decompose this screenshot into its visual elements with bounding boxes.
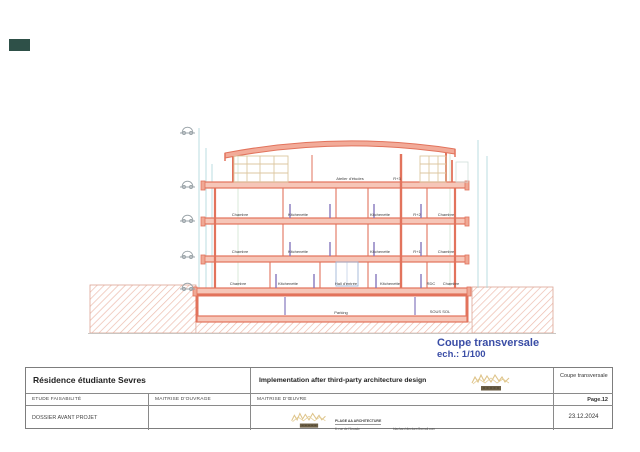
drawing-name: Coupe transversale: [554, 368, 613, 394]
drawing-sheet: Atelier d'études R+3 Chambre Kitchenette…: [0, 0, 640, 452]
curved-roof: [225, 141, 455, 161]
room-label: Hall d'entrée: [335, 281, 358, 286]
page-number: Page.12: [554, 394, 613, 406]
empty-cell: [149, 406, 251, 430]
room-label: Atelier d'études: [336, 176, 363, 181]
room-label: Kitchenette: [370, 249, 391, 254]
caption-title: Coupe transversale: [437, 337, 577, 350]
header-etude: ETUDE FAISABILITÉ: [26, 394, 149, 406]
level-label: R+2: [413, 212, 421, 217]
caption-scale: ech.: 1/100: [437, 350, 577, 361]
room-label: Kitchenette: [278, 281, 299, 286]
room-label: Kitchenette: [288, 212, 309, 217]
room-label: Chambre: [438, 212, 455, 217]
architect-logo: [287, 408, 331, 429]
car-icon: [180, 251, 195, 258]
car-icon: [180, 215, 195, 222]
room-label: Chambre: [443, 281, 460, 286]
room-label: Kitchenette: [288, 249, 309, 254]
room-label: Chambre: [438, 249, 455, 254]
architect-name: PLAGE AA ARCHITECTURE: [335, 419, 381, 425]
architect-logo: [469, 369, 513, 392]
room-label: Kitchenette: [370, 212, 391, 217]
header-maitrise-ouvrage: MAITRISE D'OUVRAGE: [149, 394, 251, 406]
header-maitrise-oeuvre: MAITRISE D'ŒUVRE: [251, 394, 554, 406]
architect-cell: PLAGE AA ARCHITECTURE 6, rue de l'Arcade…: [251, 406, 554, 430]
level-label: R+1: [413, 249, 421, 254]
room-label: Kitchenette: [380, 281, 401, 286]
car-icon: [180, 127, 195, 134]
basement-structure: [197, 295, 467, 322]
floor-slabs: [193, 181, 471, 296]
note-text: Implementation after third-party archite…: [251, 368, 474, 384]
title-block: Résidence étudiante Sevres Implementatio…: [25, 367, 613, 429]
car-icons: [180, 127, 195, 290]
project-title: Résidence étudiante Sevres: [26, 368, 251, 394]
room-label: Chambre: [230, 281, 247, 286]
phase-label: DOSSIER AVANT PROJET: [26, 406, 149, 430]
car-icon: [180, 181, 195, 188]
date-label: 23.12.2024: [554, 406, 613, 430]
architect-contact: PLAGE AA ARCHITECTURE 6, rue de l'Arcade…: [335, 409, 440, 430]
architect-address1: 6, rue de l'Arcade: [335, 427, 385, 430]
note-cell: Implementation after third-party archite…: [251, 368, 554, 394]
room-label: Chambre: [232, 212, 249, 217]
level-label: SOUS SOL: [430, 309, 451, 314]
level-label: R+3: [393, 176, 401, 181]
room-label: Parking: [334, 310, 348, 315]
level-label: RDC: [427, 281, 436, 286]
room-label: Chambre: [232, 249, 249, 254]
architect-email: blacharchitecture@gmail.com: [393, 427, 440, 430]
drawing-caption: Coupe transversale ech.: 1/100: [437, 337, 577, 361]
